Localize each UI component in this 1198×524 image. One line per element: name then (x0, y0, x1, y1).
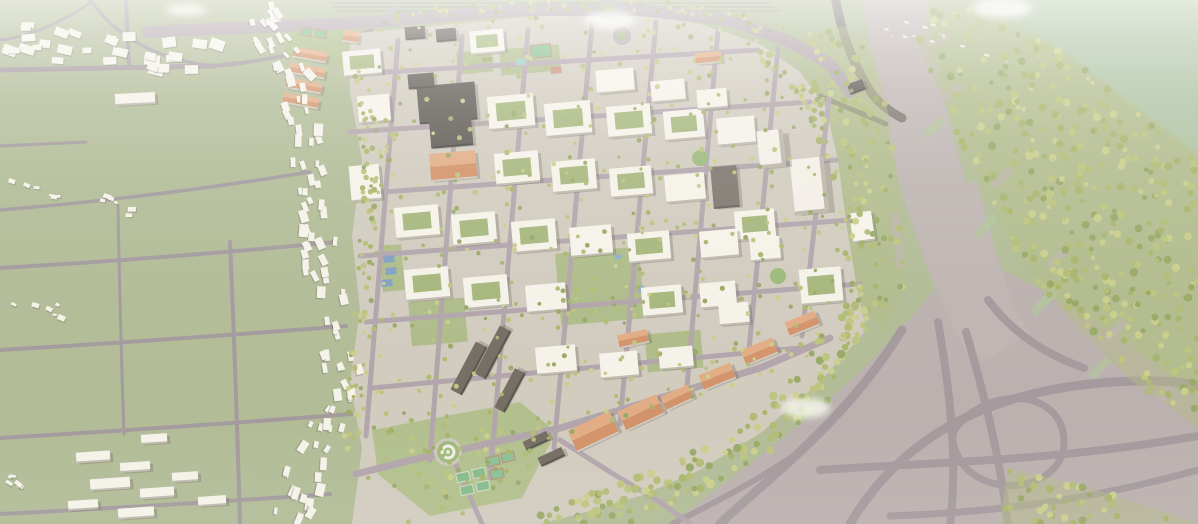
scene-viewport (0, 0, 1198, 524)
layer-effects (0, 0, 1198, 524)
aerial-city-render-canvas (0, 0, 1198, 524)
atmospheric-haze-overlay (0, 0, 1198, 524)
